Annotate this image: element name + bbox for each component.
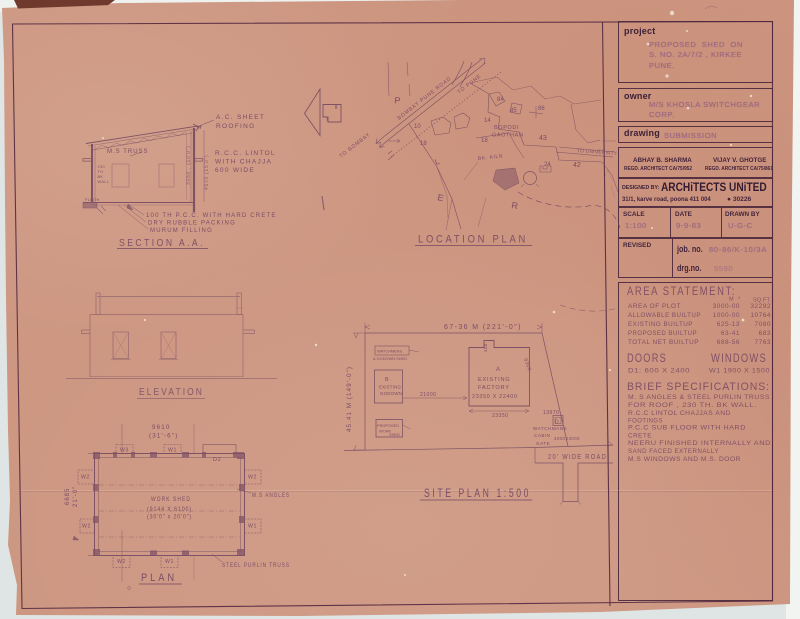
svg-text:W2: W2 [248,475,257,481]
svg-text:EXISTING: EXISTING [478,377,511,383]
svg-text:10: 10 [414,124,421,130]
svg-text:18: 18 [420,141,427,147]
svg-text:BRIEF SPECIFICATIONS:: BRIEF SPECIFICATIONS: [627,381,770,393]
svg-text:WINDOWS: WINDOWS [711,353,767,365]
svg-text:STEEL PURLIN TRUSS: STEEL PURLIN TRUSS [222,562,290,569]
svg-text:CRETE: CRETE [628,433,652,440]
svg-text:100 TH P.C.C. WITH HARD CRETE: 100 TH P.C.C. WITH HARD CRETE [146,213,277,219]
svg-text:23350: 23350 [492,413,508,419]
svg-text:WORK SHED: WORK SHED [151,496,191,503]
svg-text:20' WIDE ROAD: 20' WIDE ROAD [548,454,607,461]
svg-text:18: 18 [481,138,488,144]
svg-text:(30'0" x 20'0"): (30'0" x 20'0") [147,514,192,521]
svg-text:W1: W1 [165,559,174,565]
svg-text:DRY RUBBLE PACKING: DRY RUBBLE PACKING [148,221,236,227]
svg-text:EXISTING BUILTUP: EXISTING BUILTUP [628,321,693,328]
svg-text:B: B [385,377,389,383]
svg-text:L: L [434,157,442,167]
svg-text:FOOTINGS: FOOTINGS [628,418,663,425]
svg-text:67-36 M (221'-0"): 67-36 M (221'-0") [444,324,522,331]
svg-text:PROPOSED BUILTUP: PROPOSED BUILTUP [628,330,697,337]
svg-text:9610: 9610 [152,424,171,431]
svg-text:FACTORY: FACTORY [478,385,510,391]
svg-text:21000: 21000 [420,392,436,398]
svg-text:TOTAL NET BUILTUP: TOTAL NET BUILTUP [628,339,699,346]
svg-text:M.S TRUSS: M.S TRUSS [107,149,149,155]
svg-text:WALL: WALL [98,180,110,184]
svg-text:7080: 7080 [755,321,771,328]
svg-text:3050 , (10'0"): 3050 , (10'0") [186,146,192,186]
svg-text:SITE PLAN 1:500: SITE PLAN 1:500 [424,488,531,500]
svg-text:EXISTING: EXISTING [379,385,401,390]
svg-text:PLINTH: PLINTH [85,198,100,202]
svg-text:D1: 600 X 2400: D1: 600 X 2400 [628,368,690,375]
svg-text:BK. KILN: BK. KILN [478,153,504,162]
svg-text:R: R [511,200,520,211]
svg-text:E: E [437,192,445,203]
svg-text:(31'-6"): (31'-6") [149,433,178,440]
svg-text:P: P [394,95,402,106]
svg-text:P.C.C SUB FLOOR WITH HARD: P.C.C SUB FLOOR WITH HARD [628,425,746,432]
svg-text:A.C. SHEET: A.C. SHEET [216,114,265,121]
svg-text:ELEVATION: ELEVATION [139,386,204,398]
svg-text:AREA OF PLOT: AREA OF PLOT [628,303,681,310]
svg-text:625-13: 625-13 [717,321,740,328]
svg-text:ROOFING: ROOFING [216,123,255,130]
svg-text:3000-00: 3000-00 [713,303,740,310]
svg-text:43: 43 [539,135,547,142]
svg-text:DOORS: DOORS [627,353,667,365]
svg-text:4570 (15'0"): 4570 (15'0") [204,155,210,190]
svg-text:CABIN: CABIN [534,433,551,438]
svg-text:MURUM FILLING: MURUM FILLING [150,228,213,234]
svg-text:R.C.C. LINTOL: R.C.C. LINTOL [215,150,276,157]
svg-text:BK: BK [98,175,104,179]
svg-text:23350 X 22400: 23350 X 22400 [472,394,518,400]
svg-text:13970: 13970 [543,410,559,416]
svg-text:230: 230 [98,165,106,169]
svg-text:1000-00: 1000-00 [713,312,740,319]
svg-text:PROPOSED: PROPOSED [377,423,399,428]
svg-text:A: A [496,367,501,373]
svg-text:WATCHMENS: WATCHMENS [377,349,402,354]
svg-text:32292: 32292 [750,303,771,310]
svg-text:SECTION A.A.: SECTION A.A. [119,237,205,249]
svg-text:(9144 X 6100): (9144 X 6100) [147,506,192,513]
svg-text:W1: W1 [168,448,177,454]
svg-text:WITH CHAJJA: WITH CHAJJA [215,159,272,166]
svg-text:GODOWN: GODOWN [380,391,402,396]
svg-text:M.S ANGLES: M.S ANGLES [252,492,290,499]
svg-text:W2: W2 [81,475,90,481]
svg-text:W1: W1 [248,524,257,530]
svg-text:LOCATION PLAN: LOCATION PLAN [418,234,528,246]
svg-text:6685: 6685 [65,488,71,505]
svg-text:3000X3000: 3000X3000 [554,436,580,441]
svg-text:W3: W3 [120,448,129,454]
svg-text:AREA STATEMENT:: AREA STATEMENT: [627,284,736,298]
svg-text:ALLOWABLE BUILTUP: ALLOWABLE BUILTUP [628,312,701,319]
svg-text:600 WIDE: 600 WIDE [215,167,255,174]
svg-text:SHED: SHED [389,432,400,437]
svg-text:84: 84 [497,97,504,103]
svg-text:W2: W2 [117,559,126,565]
svg-text:SAND FACED EXTERNALLY: SAND FACED EXTERNALLY [628,448,719,455]
svg-text:14: 14 [484,118,491,124]
svg-text:WATCHMANS: WATCHMANS [533,426,567,431]
svg-text:24: 24 [544,162,551,168]
svg-text:TO PUNE: TO PUNE [457,73,483,95]
svg-text:GATE: GATE [536,441,550,446]
svg-text:D: D [555,420,559,426]
svg-text:10764: 10764 [750,312,771,319]
svg-text:45.41 M (149'-0"): 45.41 M (149'-0") [346,366,353,432]
svg-text:688-56: 688-56 [717,339,740,346]
svg-text:BOPODI: BOPODI [494,125,519,131]
svg-text:42: 42 [573,162,581,169]
svg-text:63-41: 63-41 [721,330,740,337]
svg-text:W2: W2 [82,524,91,530]
svg-text:7763: 7763 [755,339,771,346]
svg-text:21'-0": 21'-0" [73,486,79,507]
svg-text:M.S WINDOWS AND M.S. DOOR: M.S WINDOWS AND M.S. DOOR [628,456,741,463]
svg-text:BOMBAY PUNE ROAD: BOMBAY PUNE ROAD [397,76,453,122]
svg-text:W1 1900 X 1500: W1 1900 X 1500 [709,368,770,375]
svg-text:85: 85 [510,108,517,114]
svg-text:TH.: TH. [98,170,105,174]
svg-text:D2: D2 [213,457,221,463]
svg-text:400: 400 [483,343,488,352]
svg-text:FOR ROOF , 230 TH. BK WALL.: FOR ROOF , 230 TH. BK WALL. [628,402,757,409]
svg-text:PLAN: PLAN [141,572,177,584]
svg-text:M. S ANGLES & STEEL PURLIN TRU: M. S ANGLES & STEEL PURLIN TRUSS [628,394,770,401]
svg-text:86: 86 [538,106,545,112]
svg-text:683: 683 [759,330,771,337]
svg-text:NEERU FINISHED INTERNALLY AND: NEERU FINISHED INTERNALLY AND [628,440,771,447]
svg-text:9300: 9300 [522,358,532,372]
svg-text:TO BOMBAY: TO BOMBAY [339,132,372,160]
svg-text:R.C.C LINTOL CHAJJAS AND: R.C.C LINTOL CHAJJAS AND [628,410,731,417]
svg-text:& GODOWN SHED: & GODOWN SHED [373,356,407,361]
svg-text:GAOTHAN: GAOTHAN [492,133,524,139]
